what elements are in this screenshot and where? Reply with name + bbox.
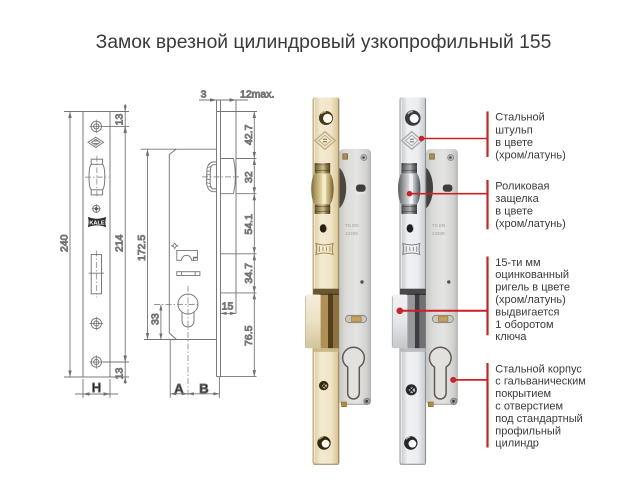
svg-text:Роликовая: Роликовая bbox=[495, 180, 549, 192]
svg-text:цилиндр: цилиндр bbox=[495, 438, 539, 450]
svg-text:(хром/латунь): (хром/латунь) bbox=[495, 218, 565, 230]
svg-text:Стальной корпус: Стальной корпус bbox=[495, 363, 582, 375]
svg-text:12209: 12209 bbox=[345, 231, 358, 236]
svg-text:(хром/латунь): (хром/латунь) bbox=[495, 294, 565, 306]
svg-text:Стальной: Стальной bbox=[495, 112, 544, 124]
svg-text:штульп: штульп bbox=[495, 124, 532, 136]
svg-text:выдвигается: выдвигается bbox=[495, 306, 559, 318]
svg-text:TS EN: TS EN bbox=[432, 223, 446, 228]
svg-text:Замок врезной цилиндровый узко: Замок врезной цилиндровый узкопрофильный… bbox=[96, 32, 552, 53]
svg-text:ригель в цвете: ригель в цвете bbox=[495, 282, 570, 294]
svg-text:с отверстием: с отверстием bbox=[495, 401, 563, 413]
svg-text:172.5: 172.5 bbox=[136, 235, 148, 261]
svg-text:12max.: 12max. bbox=[240, 89, 274, 101]
svg-text:13: 13 bbox=[114, 114, 126, 126]
svg-text:защелка: защелка bbox=[495, 193, 539, 205]
svg-text:под стандартный: под стандартный bbox=[495, 413, 583, 425]
svg-text:H: H bbox=[92, 380, 101, 395]
svg-text:B: B bbox=[199, 381, 208, 396]
svg-text:оцинкованный: оцинкованный bbox=[495, 269, 569, 281]
svg-text:ключа: ключа bbox=[495, 331, 527, 343]
svg-text:TS EN: TS EN bbox=[345, 223, 359, 228]
svg-text:профильный: профильный bbox=[495, 425, 561, 437]
svg-text:(хром/латунь): (хром/латунь) bbox=[495, 150, 565, 162]
svg-text:A: A bbox=[174, 381, 184, 396]
svg-text:в цвете: в цвете bbox=[495, 206, 533, 218]
svg-text:76.5: 76.5 bbox=[243, 325, 255, 346]
svg-text:33: 33 bbox=[150, 313, 162, 325]
svg-text:240: 240 bbox=[59, 234, 71, 252]
svg-text:покрытием: покрытием bbox=[495, 388, 551, 400]
svg-text:в цвете: в цвете bbox=[495, 137, 533, 149]
svg-text:15-ти мм: 15-ти мм bbox=[495, 257, 540, 269]
svg-text:12209: 12209 bbox=[432, 231, 445, 236]
svg-text:34.7: 34.7 bbox=[243, 263, 255, 284]
svg-text:KALE: KALE bbox=[89, 221, 104, 227]
svg-text:42.7: 42.7 bbox=[243, 124, 255, 145]
svg-text:15: 15 bbox=[222, 300, 234, 312]
svg-text:1 оборотом: 1 оборотом bbox=[495, 319, 553, 331]
svg-text:32: 32 bbox=[243, 171, 255, 183]
svg-text:214: 214 bbox=[114, 234, 126, 252]
svg-text:54.1: 54.1 bbox=[243, 214, 255, 235]
svg-text:с гальваническим: с гальваническим bbox=[495, 376, 586, 388]
svg-text:13: 13 bbox=[114, 368, 126, 380]
svg-text:3: 3 bbox=[201, 89, 207, 101]
